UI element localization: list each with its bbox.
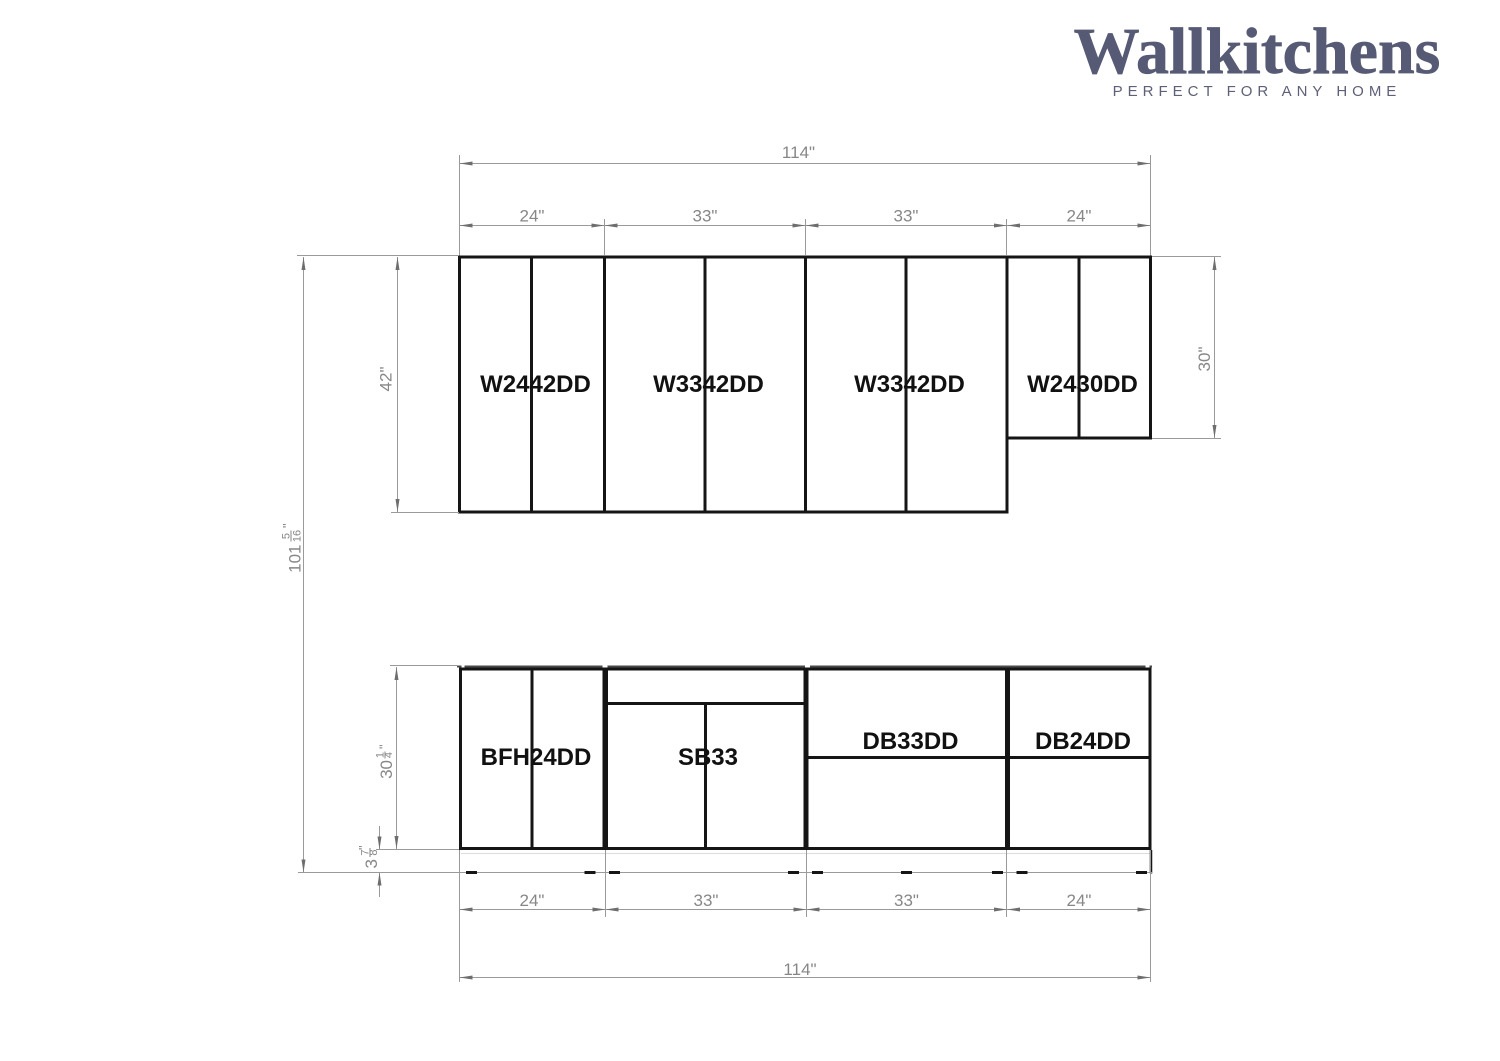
svg-text:24": 24": [520, 207, 545, 226]
svg-text:": ": [280, 523, 295, 528]
svg-text:33": 33": [894, 891, 919, 910]
svg-text:24": 24": [520, 891, 545, 910]
svg-text:BFH24DD: BFH24DD: [481, 744, 592, 771]
svg-text:42": 42": [377, 367, 396, 392]
svg-text:W2442DD: W2442DD: [480, 371, 591, 398]
svg-text:3: 3: [362, 859, 381, 868]
svg-text:Wallkitchens: Wallkitchens: [1074, 15, 1441, 88]
svg-text:W3342DD: W3342DD: [653, 371, 764, 398]
svg-text:PERFECT FOR ANY HOME: PERFECT FOR ANY HOME: [1113, 83, 1402, 100]
svg-text:33": 33": [894, 207, 919, 226]
svg-text:": ": [356, 845, 371, 850]
svg-text:30: 30: [377, 760, 396, 779]
svg-text:": ": [377, 744, 392, 749]
svg-text:DB33DD: DB33DD: [862, 728, 958, 755]
svg-text:33": 33": [693, 207, 718, 226]
svg-text:24": 24": [1067, 207, 1092, 226]
svg-text:16: 16: [292, 530, 304, 542]
svg-text:DB24DD: DB24DD: [1035, 728, 1131, 755]
svg-text:114": 114": [783, 960, 816, 979]
svg-text:30": 30": [1195, 347, 1214, 372]
svg-text:SB33: SB33: [678, 744, 738, 771]
svg-text:4: 4: [383, 752, 395, 758]
svg-text:101: 101: [286, 545, 305, 573]
svg-text:114": 114": [782, 143, 815, 162]
svg-text:W2430DD: W2430DD: [1027, 371, 1138, 398]
svg-text:24": 24": [1067, 891, 1092, 910]
svg-text:W3342DD: W3342DD: [854, 371, 965, 398]
svg-text:33": 33": [694, 891, 719, 910]
